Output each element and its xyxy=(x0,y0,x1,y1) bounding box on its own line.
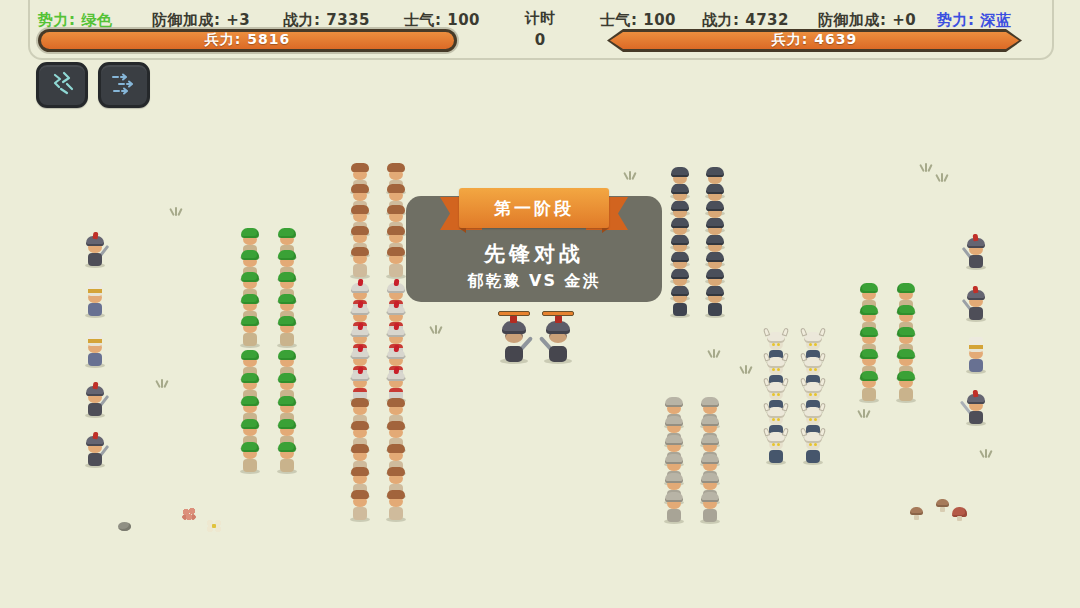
grass-decor xyxy=(170,206,182,216)
blue-berserkers-unit xyxy=(762,433,790,465)
battle-screen: 势力: 绿色 防御加成: +3 战力: 7335 士气: 100 计时 0 士气… xyxy=(0,0,1080,608)
blue-berserkers-unit xyxy=(799,433,827,465)
blue-troops-bar: 兵力: 4639 xyxy=(607,29,1022,52)
green-defense-stat: 防御加成: +3 xyxy=(152,11,250,30)
stage-title: 先锋对战 xyxy=(406,240,662,268)
stage-matchup: 郁乾豫 VS 金洪 xyxy=(406,271,662,292)
stage-ribbon: 第一阶段 xyxy=(440,188,628,236)
blue-flank-guards-unit xyxy=(962,290,990,322)
timer-value: 0 xyxy=(508,31,572,49)
skill-button-1[interactable] xyxy=(36,62,88,108)
blue-power-stat: 战力: 4732 xyxy=(702,11,789,30)
blue-defense-stat: 防御加成: +0 xyxy=(818,11,916,30)
green-militia-top-unit xyxy=(346,247,374,279)
stone-decor xyxy=(118,522,131,531)
green-troops-bar: 兵力: 5816 xyxy=(38,29,457,52)
green-morale-stat: 士气: 100 xyxy=(404,11,480,30)
green-archers-front-unit xyxy=(236,316,264,348)
mush-mush-brown-decor xyxy=(936,499,949,512)
green-archers-rear-unit xyxy=(236,442,264,474)
blue-silver-knights-unit xyxy=(660,492,688,524)
green-power-stat: 战力: 7335 xyxy=(283,11,370,30)
green-archers-rear-unit xyxy=(273,442,301,474)
grass-decor xyxy=(708,348,720,358)
green-militia-bottom-unit xyxy=(346,490,374,522)
blue-archers-unit xyxy=(855,371,883,403)
blue-archers-unit xyxy=(892,371,920,403)
grass-decor xyxy=(624,170,636,180)
skill-button-2[interactable] xyxy=(98,62,150,108)
flower-white-decor xyxy=(206,519,222,532)
duel-champion-green xyxy=(496,320,532,364)
stage-ribbon-label: 第一阶段 xyxy=(459,188,609,228)
blue-morale-stat: 士气: 100 xyxy=(600,11,676,30)
grass-decor xyxy=(858,408,870,418)
mush-mush-brown-decor xyxy=(910,507,923,520)
green-archers-front-unit xyxy=(273,316,301,348)
grass-decor xyxy=(430,324,442,334)
battlefield xyxy=(0,0,1080,608)
blue-faction-label: 势力: 深蓝 xyxy=(937,11,1011,30)
stage-panel: 第一阶段 先锋对战 郁乾豫 VS 金洪 xyxy=(406,196,662,302)
cavalry-skill-icon xyxy=(46,68,78,103)
green-flank-guards-unit xyxy=(81,386,109,418)
green-flank-guards-unit xyxy=(81,236,109,268)
grass-decor xyxy=(156,378,168,388)
green-militia-top-unit xyxy=(382,247,410,279)
blue-silver-knights-unit xyxy=(696,492,724,524)
duel-champion-blue xyxy=(540,320,576,364)
green-flank-guards-unit xyxy=(81,436,109,468)
grass-decor xyxy=(920,162,932,172)
green-flank-guards-unit xyxy=(81,286,109,318)
blue-flank-guards-unit xyxy=(962,394,990,426)
grass-decor xyxy=(936,172,948,182)
green-militia-bottom-unit xyxy=(382,490,410,522)
blue-flank-guards-unit xyxy=(962,238,990,270)
flower-pink-decor xyxy=(182,508,196,521)
mush-mush-red-decor xyxy=(952,507,967,521)
blue-flank-guards-unit xyxy=(962,342,990,374)
blue-infantry-unit xyxy=(666,286,694,318)
charge-arrows-icon xyxy=(108,68,140,103)
grass-decor xyxy=(740,364,752,374)
blue-infantry-unit xyxy=(701,286,729,318)
green-faction-label: 势力: 绿色 xyxy=(38,11,112,30)
green-troops-label: 兵力: 5816 xyxy=(38,31,457,49)
green-flank-guards-unit xyxy=(81,336,109,368)
blue-troops-label: 兵力: 4639 xyxy=(607,31,1022,49)
timer-label: 计时 xyxy=(508,9,572,28)
grass-decor xyxy=(980,448,992,458)
